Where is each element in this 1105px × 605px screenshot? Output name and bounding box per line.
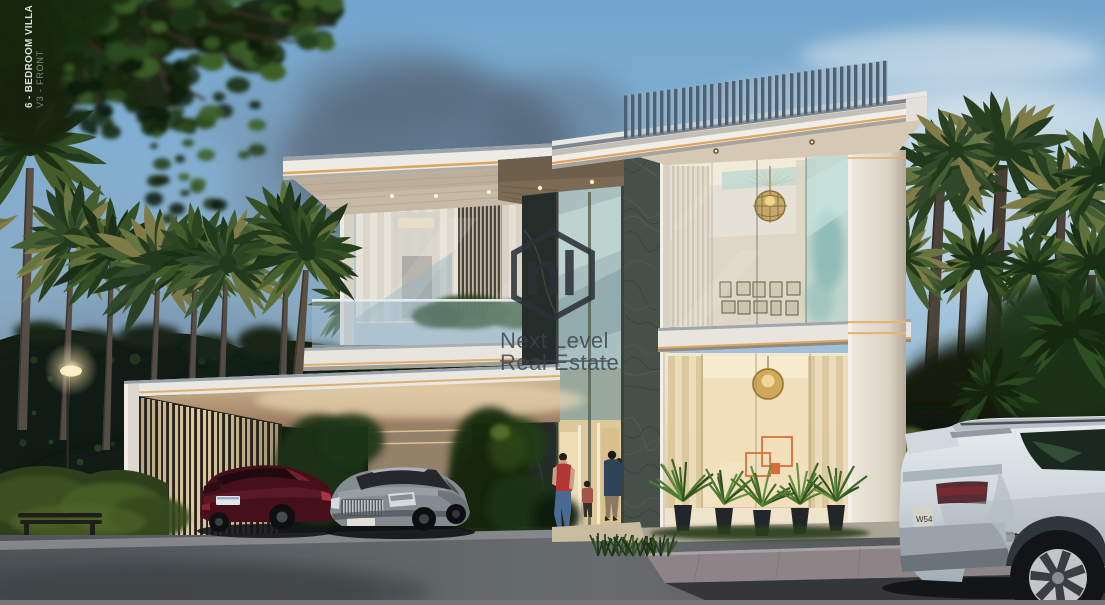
svg-text:V3 - FRONT: V3 - FRONT bbox=[35, 50, 45, 108]
svg-text:W54: W54 bbox=[916, 515, 933, 524]
svg-text:6 - BEDROOM VILLA: 6 - BEDROOM VILLA bbox=[24, 5, 35, 108]
svg-text:Real Estate: Real Estate bbox=[500, 350, 619, 375]
svg-text:nl: nl bbox=[524, 240, 577, 309]
